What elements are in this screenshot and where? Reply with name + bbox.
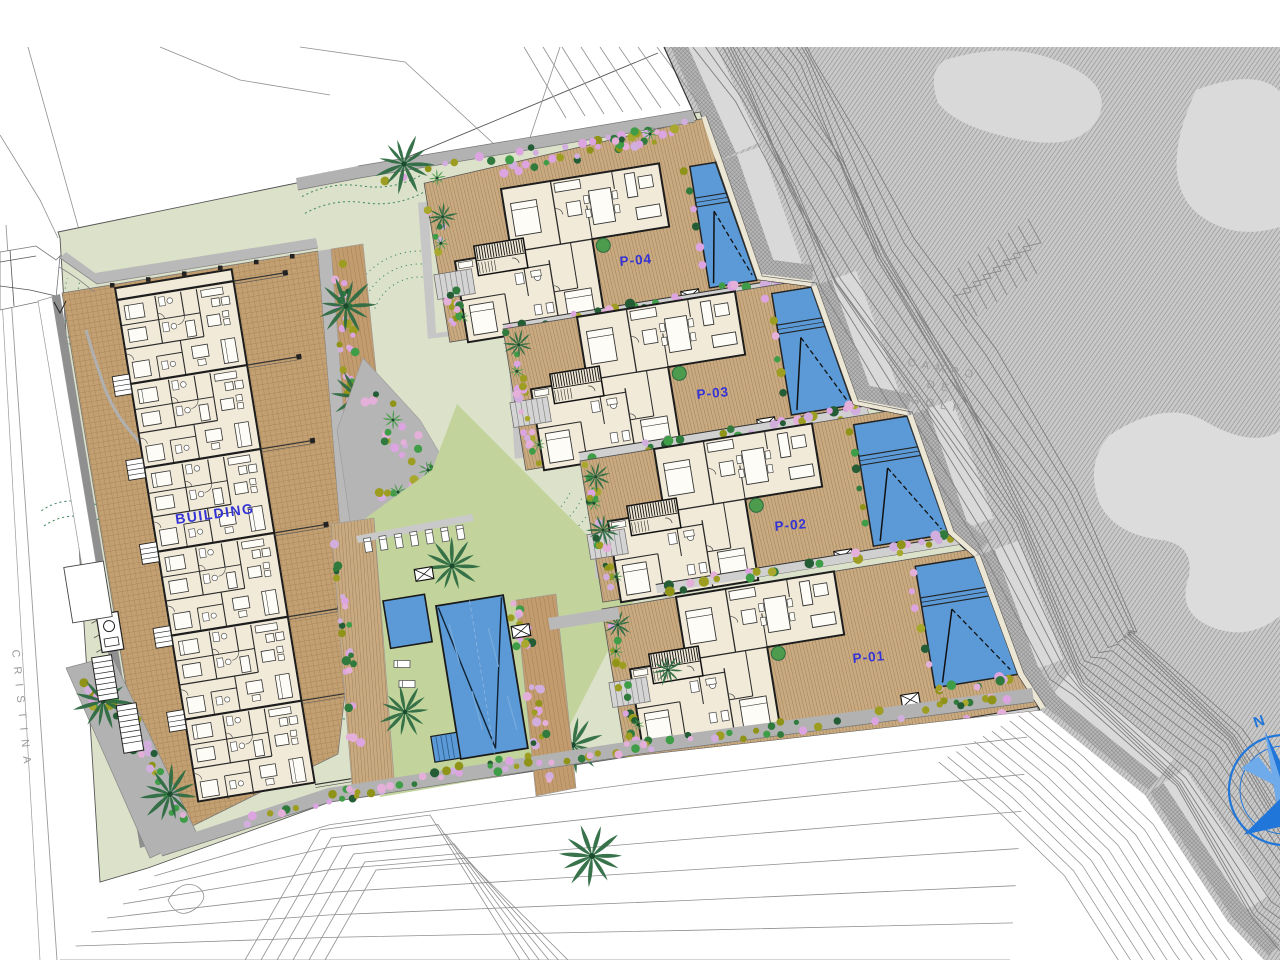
svg-text:P-03: P-03 xyxy=(696,384,730,402)
svg-text:P-01: P-01 xyxy=(852,648,886,666)
svg-text:P-02: P-02 xyxy=(774,516,808,534)
svg-text:P-04: P-04 xyxy=(619,251,653,269)
